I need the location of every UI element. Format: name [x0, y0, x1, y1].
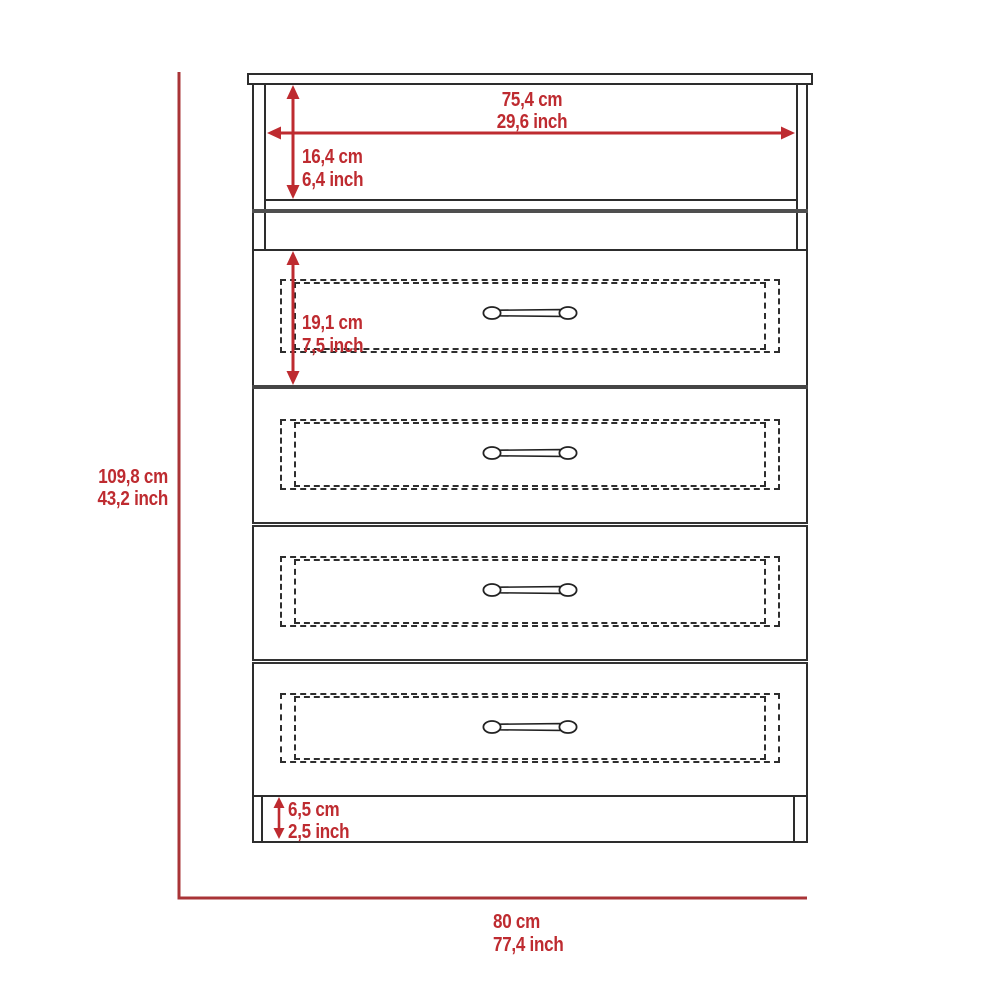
top-compartment-cm: 16,4 cm: [302, 146, 363, 169]
drawer-height-inch: 7,5 inch: [302, 335, 363, 358]
drawer-height-label: 19,1 cm 7,5 inch: [302, 312, 363, 358]
base-right-leg-line: [793, 797, 795, 841]
overall-height-inch: 43,2 inch: [83, 488, 168, 510]
overall-width-inch: 77,4 inch: [493, 934, 563, 957]
dimension-diagram: 75,4 cm 29,6 inch 16,4 cm 6,4 inch 19,1 …: [0, 0, 1000, 1000]
base-left-leg-line: [261, 797, 263, 841]
base-top-line: [252, 795, 808, 797]
overall-width-label: 80 cm 77,4 inch: [493, 911, 563, 957]
dresser-top-board: [247, 73, 813, 85]
drawer-2: [252, 389, 808, 522]
interior-width-inch: 29,6 inch: [405, 111, 660, 133]
top-compartment-height-arrow: [287, 85, 300, 199]
drawer-3: [252, 526, 808, 659]
interior-width-label: 75,4 cm 29,6 inch: [405, 89, 660, 133]
drawer-handle-icon: [482, 305, 578, 321]
interior-width-cm: 75,4 cm: [405, 89, 660, 111]
shelf-board: [252, 209, 808, 213]
shelf-front-line: [266, 199, 796, 201]
left-panel-inner-line: [264, 84, 266, 251]
base-height-label: 6,5 cm 2,5 inch: [288, 799, 349, 843]
right-panel-inner-line: [796, 84, 798, 251]
overall-height-label: 109,8 cm 43,2 inch: [83, 466, 168, 510]
drawer-handle-icon: [482, 445, 578, 461]
base-height-arrow: [274, 797, 285, 839]
overall-height-cm: 109,8 cm: [83, 466, 168, 488]
top-compartment-inch: 6,4 inch: [302, 169, 363, 192]
drawer-4: [252, 663, 808, 795]
top-compartment-height-label: 16,4 cm 6,4 inch: [302, 146, 363, 192]
overall-width-cm: 80 cm: [493, 911, 563, 934]
drawer-handle-icon: [482, 719, 578, 735]
drawer-height-cm: 19,1 cm: [302, 312, 363, 335]
base-height-inch: 2,5 inch: [288, 821, 349, 843]
drawer-handle-icon: [482, 582, 578, 598]
base-height-cm: 6,5 cm: [288, 799, 349, 821]
